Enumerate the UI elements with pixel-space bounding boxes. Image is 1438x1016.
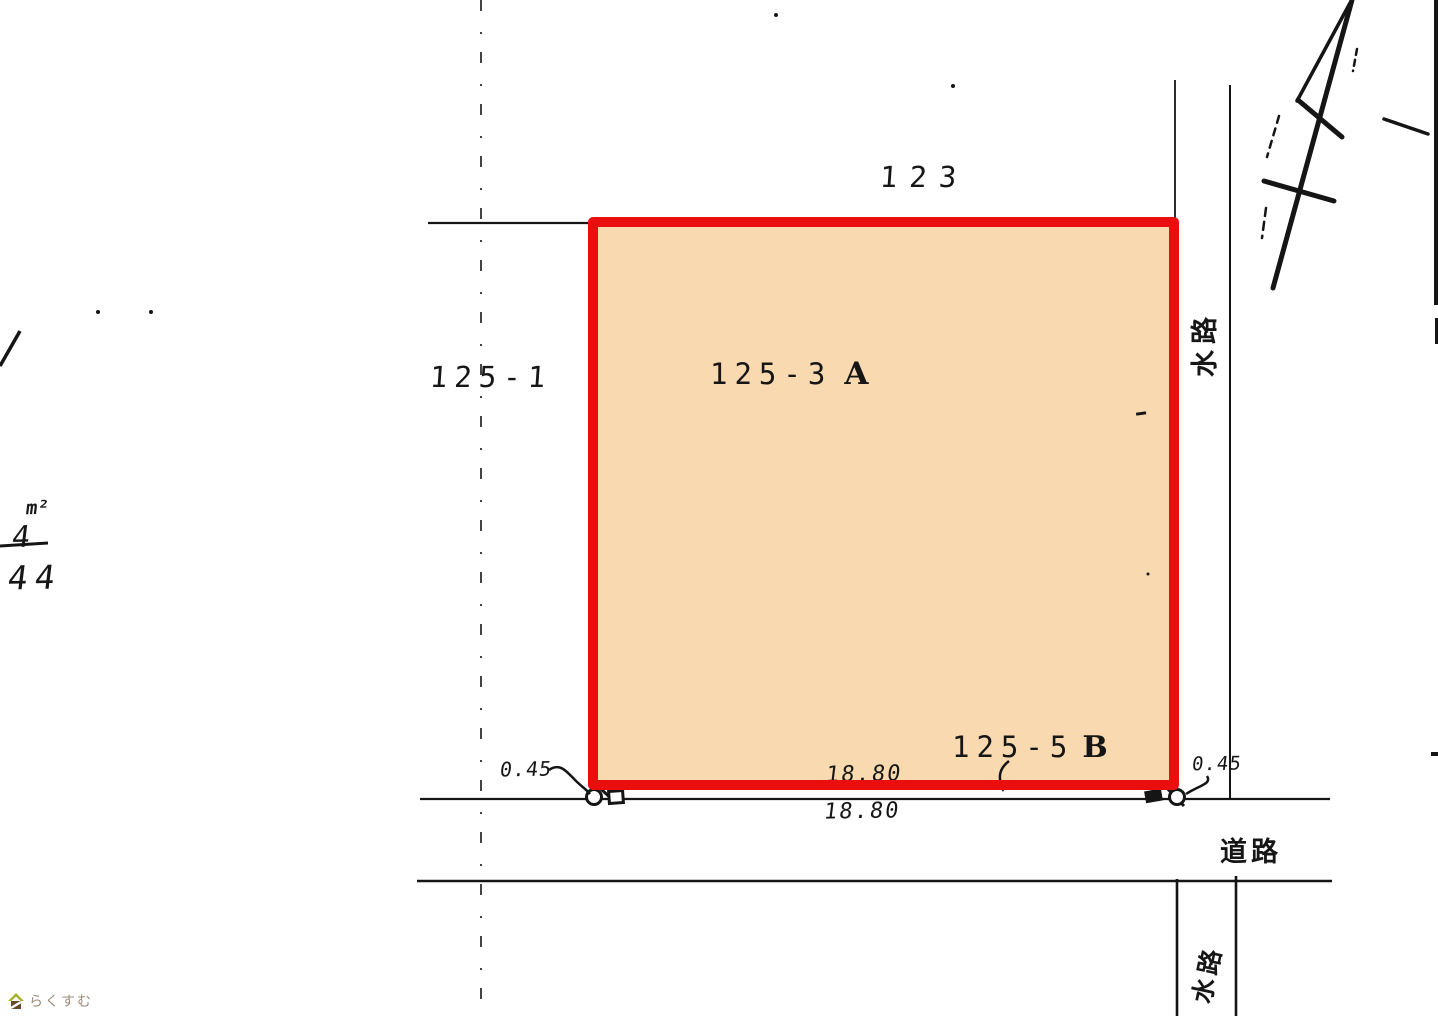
parcel-suffix: B: [1082, 730, 1107, 765]
house-icon: [8, 993, 24, 1009]
handwritten-figure-44: 44: [6, 558, 65, 598]
handwritten-figure-4: 4: [10, 520, 32, 555]
waterway-east-label: 水路: [1166, 308, 1238, 380]
parcel-label-125-3: 125-3A: [710, 356, 868, 392]
watermark-brand: らくすむ: [29, 991, 93, 1011]
cadastral-survey-map: 123 125-1 125-3A 125-5B 水路 道路 水路 0.45 0.…: [0, 0, 1438, 1016]
parcel-number: 125-5: [952, 730, 1074, 764]
frontage-lower-value: 18.80: [822, 798, 901, 824]
parcel-label-125-1: 125-1: [429, 360, 554, 394]
map-labels: 123 125-1 125-3A 125-5B 水路 道路 水路 0.45 0.…: [0, 0, 1438, 1016]
parcel-label-123: 123: [879, 160, 970, 194]
parcel-number: 125-3: [710, 357, 832, 391]
watermark: らくすむ: [8, 991, 93, 1011]
offset-east-value: 0.45: [1191, 753, 1244, 776]
frontage-upper-value: 18.80: [824, 761, 903, 787]
handwritten-unit: m²: [25, 497, 51, 519]
road-label: 道路: [1220, 830, 1282, 869]
parcel-label-125-5: 125-5B: [952, 730, 1108, 765]
waterway-south-label: 水路: [1163, 931, 1248, 1016]
offset-west-value: 0.45: [498, 757, 553, 782]
parcel-suffix: A: [844, 356, 868, 392]
